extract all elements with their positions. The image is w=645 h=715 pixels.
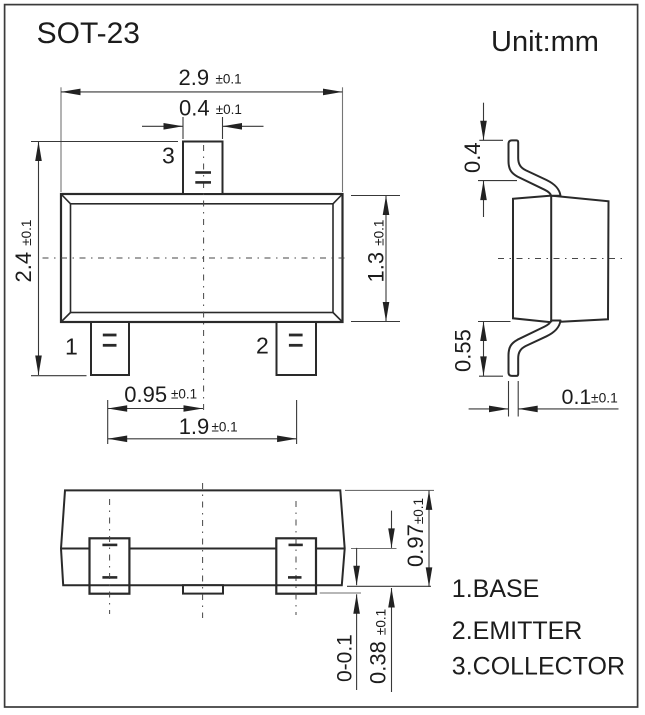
svg-text:±0.1: ±0.1 xyxy=(216,72,242,87)
svg-text:0-0.1: 0-0.1 xyxy=(334,634,357,682)
svg-text:3: 3 xyxy=(162,143,175,169)
svg-text:±0.1: ±0.1 xyxy=(591,391,618,406)
svg-text:0.4: 0.4 xyxy=(460,142,485,173)
svg-text:Unit:mm: Unit:mm xyxy=(491,26,599,58)
svg-text:0.4: 0.4 xyxy=(179,96,210,121)
svg-text:±0.1: ±0.1 xyxy=(171,387,197,402)
svg-text:1.BASE: 1.BASE xyxy=(452,575,540,603)
svg-text:±0.1: ±0.1 xyxy=(212,420,238,435)
svg-text:±0.1: ±0.1 xyxy=(216,102,242,117)
svg-text:SOT-23: SOT-23 xyxy=(37,17,140,50)
svg-text:0.95: 0.95 xyxy=(124,382,167,407)
svg-text:0.1: 0.1 xyxy=(562,385,592,409)
svg-text:1.9: 1.9 xyxy=(179,414,210,439)
svg-text:2.EMITTER: 2.EMITTER xyxy=(452,617,583,645)
svg-text:2.9: 2.9 xyxy=(179,65,210,90)
svg-text:1: 1 xyxy=(65,333,78,359)
svg-text:0.55: 0.55 xyxy=(451,329,476,372)
svg-text:2: 2 xyxy=(256,333,269,359)
svg-text:3.COLLECTOR: 3.COLLECTOR xyxy=(452,653,625,681)
